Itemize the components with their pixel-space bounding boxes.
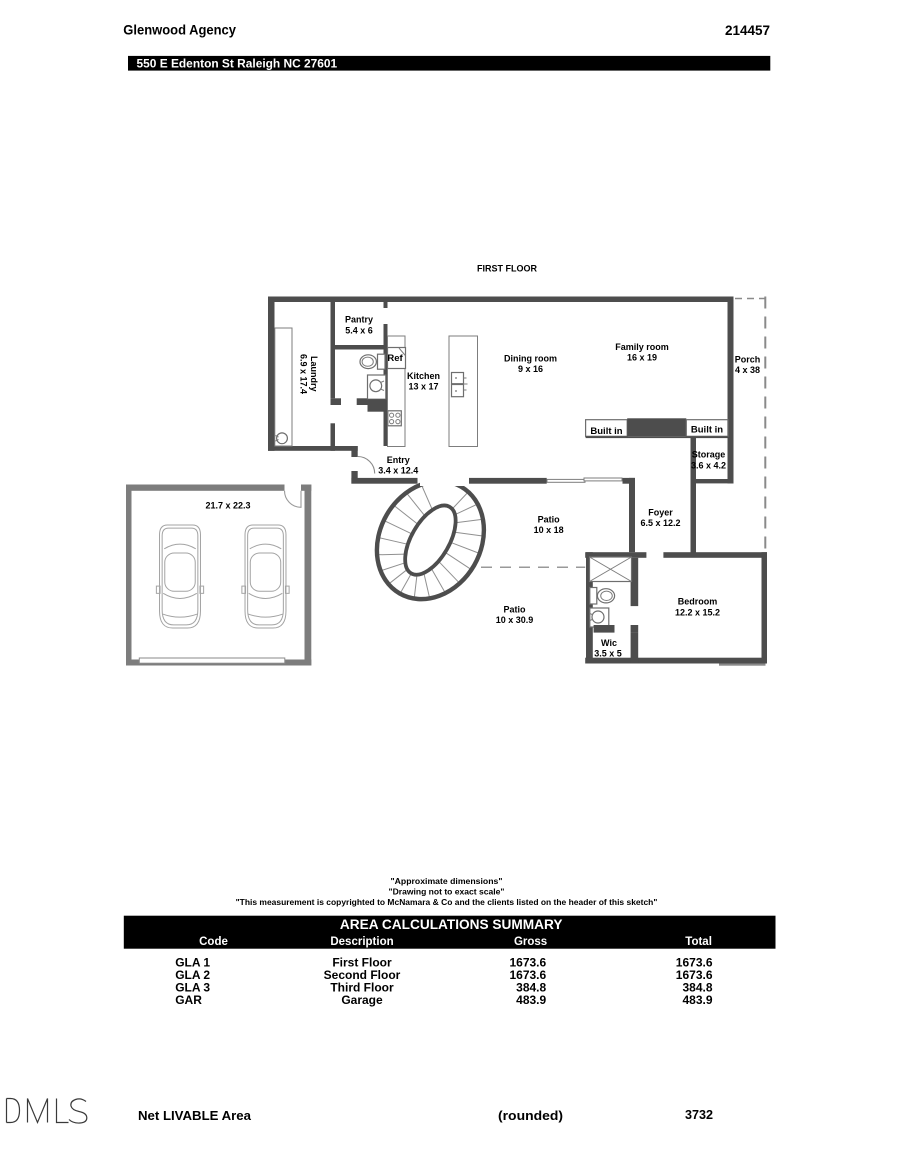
svg-text:10 x 30.9: 10 x 30.9: [496, 615, 534, 625]
svg-text:Foyer: Foyer: [648, 508, 673, 518]
svg-text:3.6 x 4.2: 3.6 x 4.2: [691, 461, 726, 471]
svg-text:Glenwood Agency: Glenwood Agency: [123, 22, 236, 38]
svg-text:483.9: 483.9: [516, 993, 546, 1007]
svg-text:Ref: Ref: [387, 353, 403, 364]
svg-text:3.5 x 5: 3.5 x 5: [594, 649, 622, 659]
svg-text:16 x 19: 16 x 19: [627, 353, 657, 363]
svg-text:Family room: Family room: [615, 342, 669, 352]
svg-text:214457: 214457: [725, 23, 770, 38]
svg-text:Entry: Entry: [387, 455, 410, 465]
svg-text:6.5 x 12.2: 6.5 x 12.2: [640, 518, 680, 528]
svg-text:5.4 x 6: 5.4 x 6: [345, 326, 373, 336]
svg-text:3.4 x 12.4: 3.4 x 12.4: [378, 466, 418, 476]
svg-text:10 x 18: 10 x 18: [534, 525, 564, 535]
svg-text:(rounded): (rounded): [498, 1108, 563, 1123]
svg-text:Patio: Patio: [538, 514, 561, 524]
svg-text:Gross: Gross: [514, 936, 547, 948]
svg-text:Code: Code: [199, 936, 228, 948]
svg-text:Net LIVABLE Area: Net LIVABLE Area: [138, 1108, 252, 1123]
svg-text:FIRST FLOOR: FIRST FLOOR: [477, 264, 537, 274]
svg-text:Kitchen: Kitchen: [407, 371, 440, 381]
svg-text:Patio: Patio: [503, 605, 526, 615]
svg-text:Built in: Built in: [590, 426, 622, 437]
svg-text:"This measurement is copyright: "This measurement is copyrighted to McNa…: [236, 897, 658, 907]
svg-text:4 x 38: 4 x 38: [735, 365, 760, 375]
svg-text:GAR: GAR: [175, 993, 202, 1007]
svg-text:6.9 x 17.4: 6.9 x 17.4: [298, 354, 308, 394]
svg-text:9 x 16: 9 x 16: [518, 364, 543, 374]
svg-text:3732: 3732: [685, 1107, 713, 1122]
svg-text:Wic: Wic: [601, 638, 617, 648]
svg-text:12.2 x 15.2: 12.2 x 15.2: [675, 608, 720, 618]
svg-text:AREA CALCULATIONS SUMMARY: AREA CALCULATIONS SUMMARY: [340, 917, 563, 932]
svg-text:13 x 17: 13 x 17: [408, 382, 438, 392]
svg-text:"Drawing not to exact scale": "Drawing not to exact scale": [389, 887, 505, 897]
svg-text:"Approximate dimensions": "Approximate dimensions": [391, 876, 503, 886]
svg-text:Pantry: Pantry: [345, 315, 373, 325]
svg-text:Storage: Storage: [692, 450, 726, 460]
svg-text:Built in: Built in: [691, 424, 723, 435]
svg-text:Dining room: Dining room: [504, 354, 557, 364]
svg-text:550 E Edenton St Raleigh NC 27: 550 E Edenton St Raleigh NC 27601: [137, 56, 338, 70]
svg-text:483.9: 483.9: [682, 993, 712, 1007]
svg-text:Description: Description: [330, 936, 393, 948]
svg-text:21.7 x 22.3: 21.7 x 22.3: [205, 500, 250, 510]
svg-text:Total: Total: [685, 936, 712, 948]
svg-text:Bedroom: Bedroom: [678, 597, 718, 607]
svg-text:Porch: Porch: [735, 355, 761, 365]
svg-text:Laundry: Laundry: [309, 356, 319, 392]
svg-text:Garage: Garage: [341, 993, 383, 1007]
